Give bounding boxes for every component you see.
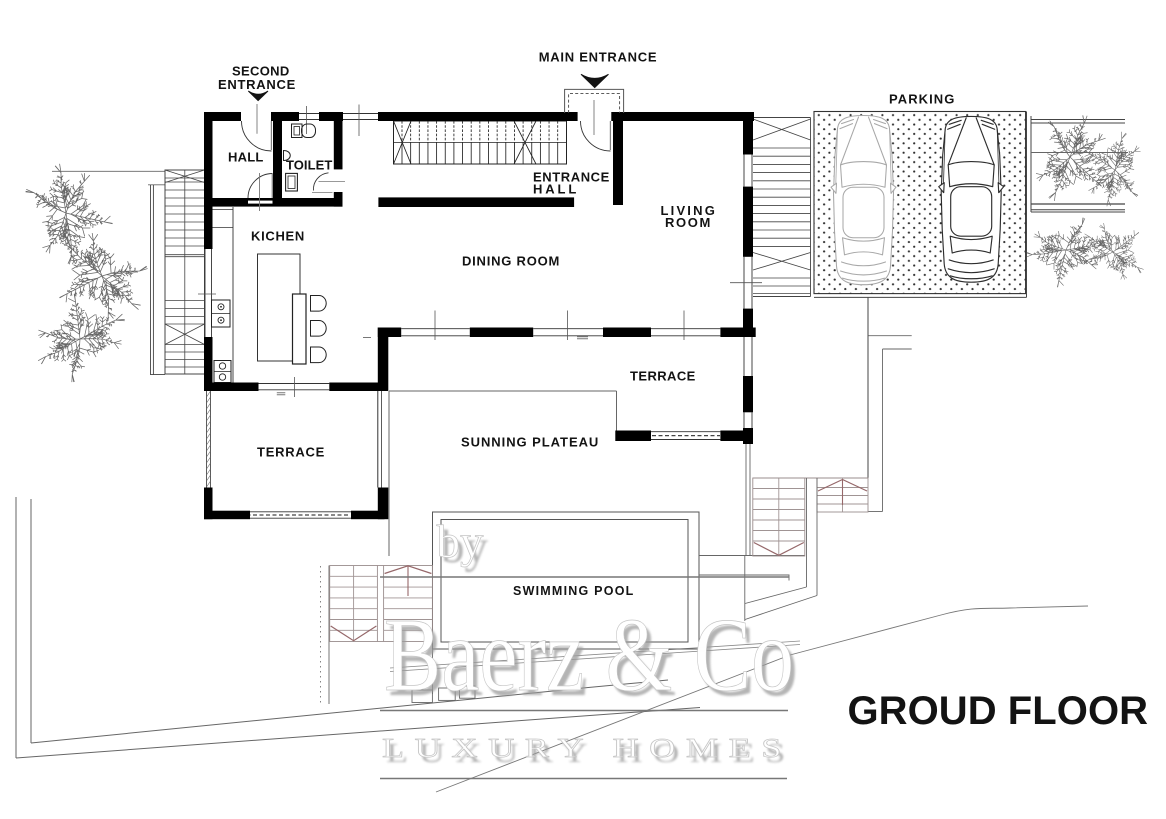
- svg-text:KICHEN: KICHEN: [251, 229, 305, 244]
- svg-text:TERRACE: TERRACE: [257, 445, 325, 460]
- svg-text:HALL: HALL: [533, 182, 577, 197]
- svg-text:MAIN ENTRANCE: MAIN ENTRANCE: [539, 50, 658, 65]
- svg-text:by: by: [437, 516, 485, 568]
- svg-text:GROUD FLOOR: GROUD FLOOR: [848, 689, 1149, 733]
- svg-text:DINING ROOM: DINING ROOM: [462, 254, 560, 269]
- svg-text:SUNNING PLATEAU: SUNNING PLATEAU: [461, 435, 599, 450]
- svg-text:TOILET: TOILET: [286, 158, 333, 173]
- svg-text:HALL: HALL: [228, 150, 264, 165]
- svg-text:ENTRANCE: ENTRANCE: [218, 77, 296, 92]
- svg-text:ROOM: ROOM: [665, 215, 711, 230]
- svg-text:LUXURY HOMES: LUXURY HOMES: [382, 732, 792, 763]
- svg-text:TERRACE: TERRACE: [630, 369, 696, 384]
- svg-text:PARKING: PARKING: [889, 92, 955, 107]
- svg-text:Baerz & Co: Baerz & Co: [384, 596, 794, 713]
